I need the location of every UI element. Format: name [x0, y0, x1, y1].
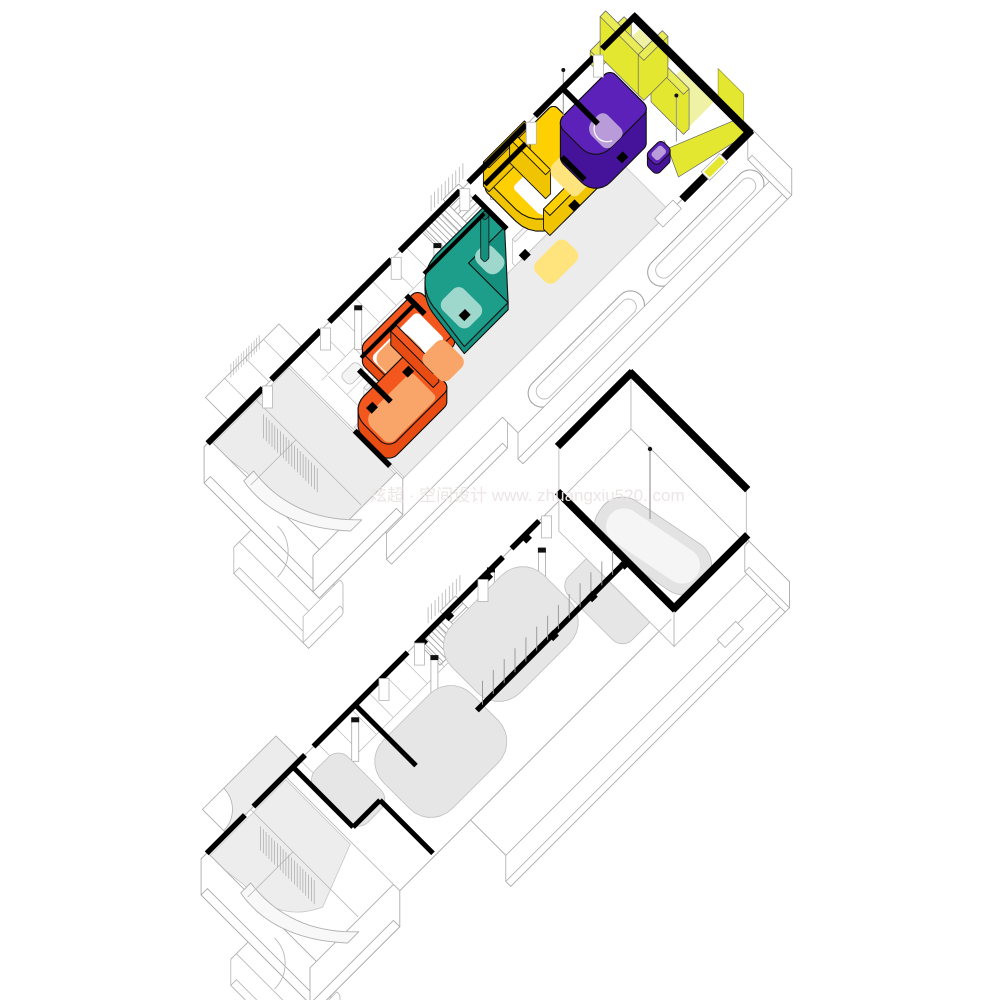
svg-text:炫超 · 空间设计 www. zhuangxiu520.: 炫超 · 空间设计 www. zhuangxiu520. com [370, 486, 685, 505]
